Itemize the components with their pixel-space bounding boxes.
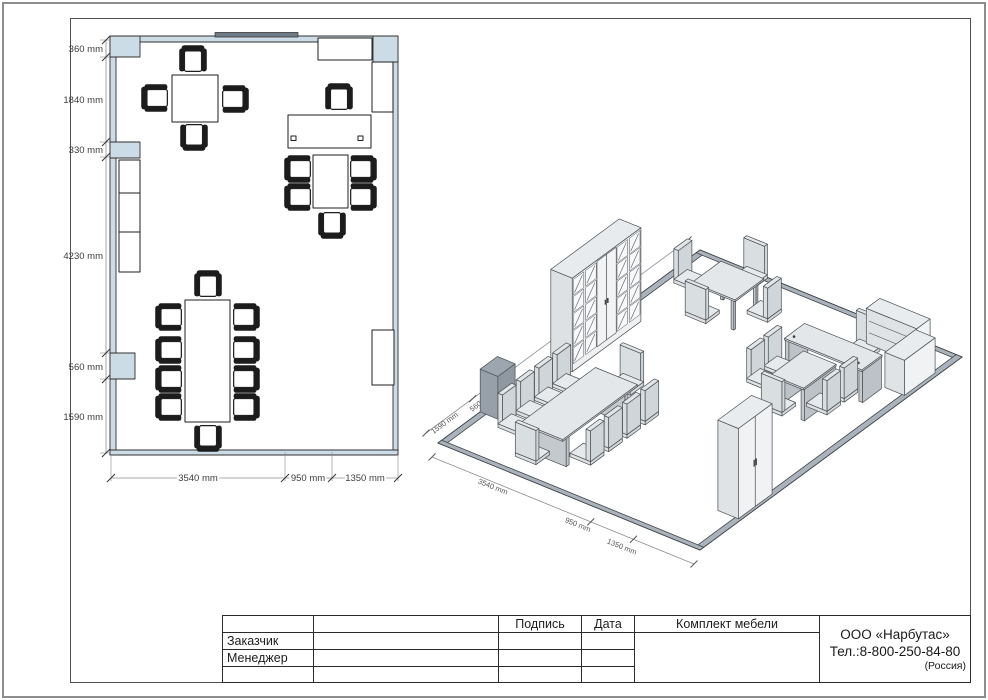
wall-pier-360 (110, 36, 140, 57)
customer-signature[interactable] (499, 633, 582, 650)
top-wall-window (215, 33, 298, 38)
company-country: (Россия) (824, 660, 966, 673)
title-cell-empty (582, 667, 635, 683)
plan-chair (234, 365, 260, 393)
plan-chair (155, 393, 181, 421)
iso-wardrobe (718, 395, 772, 518)
furniture-drawing: 360 mm 1840 mm 330 mm 4230 mm 560 mm 159… (0, 0, 988, 700)
title-cell-empty (314, 667, 499, 683)
dim-label-3540: 3540 mm (178, 473, 218, 484)
manager-value[interactable] (314, 650, 499, 667)
date-header: Дата (582, 616, 635, 633)
wall-pier-560 (110, 353, 135, 379)
dim-label-330: 330 mm (69, 145, 103, 156)
floor-plan-2d: 360 mm 1840 mm 330 mm 4230 mm 560 mm 159… (63, 33, 402, 485)
dim-label-4230: 4230 mm (63, 251, 103, 262)
plan-wall-cabinet-top (318, 38, 372, 60)
plan-chair (155, 365, 181, 393)
plan-chair (284, 183, 310, 211)
plan-conference-table (185, 300, 230, 422)
plan-sideboard (372, 330, 394, 385)
customer-label: Заказчик (223, 633, 314, 650)
plan-chair (325, 83, 353, 109)
plan-chair (194, 270, 222, 296)
plan-chair (284, 155, 310, 183)
plan-chair (234, 393, 260, 421)
project-title: Комплект мебели (635, 616, 820, 633)
plan-desk (288, 115, 371, 148)
plan-chair (318, 213, 346, 239)
title-block: Подпись Дата Комплект мебели ООО «Нарбут… (222, 615, 971, 683)
plan-chair (179, 45, 207, 71)
plan-square-table (172, 75, 218, 122)
dim-label-1840: 1840 mm (63, 95, 103, 106)
dim-label-1590: 1590 mm (63, 412, 103, 423)
plan-chair (155, 336, 181, 364)
plan-chair (194, 426, 222, 452)
dim-label-360: 360 mm (69, 44, 103, 55)
company-name: ООО «Нарбутас» (824, 626, 966, 643)
project-body (635, 633, 820, 683)
plan-chair (180, 125, 208, 151)
dim-label-1350: 1350 mm (345, 473, 385, 484)
title-cell-empty (223, 616, 314, 633)
customer-date[interactable] (582, 633, 635, 650)
manager-label: Менеджер (223, 650, 314, 667)
company-phone: Тел.:8-800-250-84-80 (824, 643, 966, 660)
drawing-sheet: 360 mm 1840 mm 330 mm 4230 mm 560 mm 159… (0, 0, 988, 700)
plan-chair (234, 303, 260, 331)
customer-value[interactable] (314, 633, 499, 650)
plan-chair (223, 85, 249, 113)
title-cell-empty (223, 667, 314, 683)
signature-header: Подпись (499, 616, 582, 633)
plan-chair (141, 84, 167, 112)
company-info: ООО «Нарбутас» Тел.:8-800-250-84-80 (Рос… (820, 616, 971, 683)
plan-bookcase (119, 160, 140, 272)
plan-chair (351, 183, 377, 211)
plan-wall-cabinet-right (372, 62, 393, 112)
plan-chair (351, 155, 377, 183)
plan-chair (234, 336, 260, 364)
title-cell-empty (314, 616, 499, 633)
plan-meeting-table (313, 155, 348, 208)
manager-date[interactable] (582, 650, 635, 667)
manager-signature[interactable] (499, 650, 582, 667)
wall-pier-corner (373, 36, 398, 62)
plan-chair (155, 303, 181, 331)
wall-pier-330 (110, 142, 140, 158)
plan-dim-chain-left: 360 mm 1840 mm 330 mm 4230 mm 560 mm 159… (63, 36, 110, 457)
dim-label-950: 950 mm (291, 473, 325, 484)
dim-label-560: 560 mm (69, 362, 103, 373)
plan-dim-chain-bottom: 3540 mm 950 mm 1350 mm (107, 452, 402, 484)
iso-view-3d (423, 219, 963, 568)
title-cell-empty (499, 667, 582, 683)
